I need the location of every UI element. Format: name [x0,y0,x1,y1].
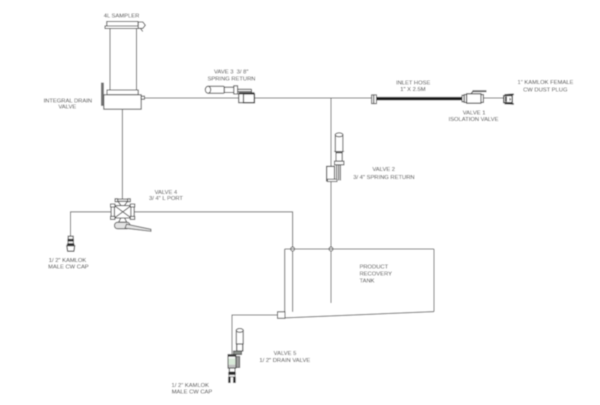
svg-text:MALE CW CAP: MALE CW CAP [172,389,213,395]
svg-text:1/ 2" KAMLOK: 1/ 2" KAMLOK [49,258,87,264]
svg-text:ISOLATION VALVE: ISOLATION VALVE [449,117,499,123]
svg-text:CW DUST PLUG: CW DUST PLUG [523,87,568,93]
svg-text:SPRING RETURN: SPRING RETURN [208,76,256,82]
svg-text:VALVE 1: VALVE 1 [463,110,486,116]
svg-text:VALVE 4: VALVE 4 [155,190,178,196]
svg-text:4L SAMPLER: 4L SAMPLER [104,14,140,20]
svg-text:1" X 2.5M: 1" X 2.5M [400,87,425,93]
svg-text:RECOVERY: RECOVERY [360,271,393,277]
svg-text:1" KAMLOK FEMALE: 1" KAMLOK FEMALE [517,80,573,86]
svg-text:VAVE 3 3/ 8": VAVE 3 3/ 8" [214,70,248,76]
svg-text:3/ 4" L PORT: 3/ 4" L PORT [149,196,183,202]
svg-text:INLET HOSE: INLET HOSE [396,80,430,86]
svg-text:1/ 2" DRAIN VALVE: 1/ 2" DRAIN VALVE [259,358,310,364]
svg-text:VALVE 5: VALVE 5 [274,351,297,357]
svg-text:1/ 2" KAMLOK: 1/ 2" KAMLOK [172,383,210,389]
svg-text:MALE CW CAP: MALE CW CAP [48,264,89,270]
svg-text:VALVE 2: VALVE 2 [372,167,395,173]
svg-text:TANK: TANK [360,279,375,285]
svg-text:3/ 4" SPRING RETURN: 3/ 4" SPRING RETURN [353,175,414,181]
svg-text:VALVE: VALVE [58,104,76,110]
svg-text:PRODUCT: PRODUCT [360,264,389,270]
